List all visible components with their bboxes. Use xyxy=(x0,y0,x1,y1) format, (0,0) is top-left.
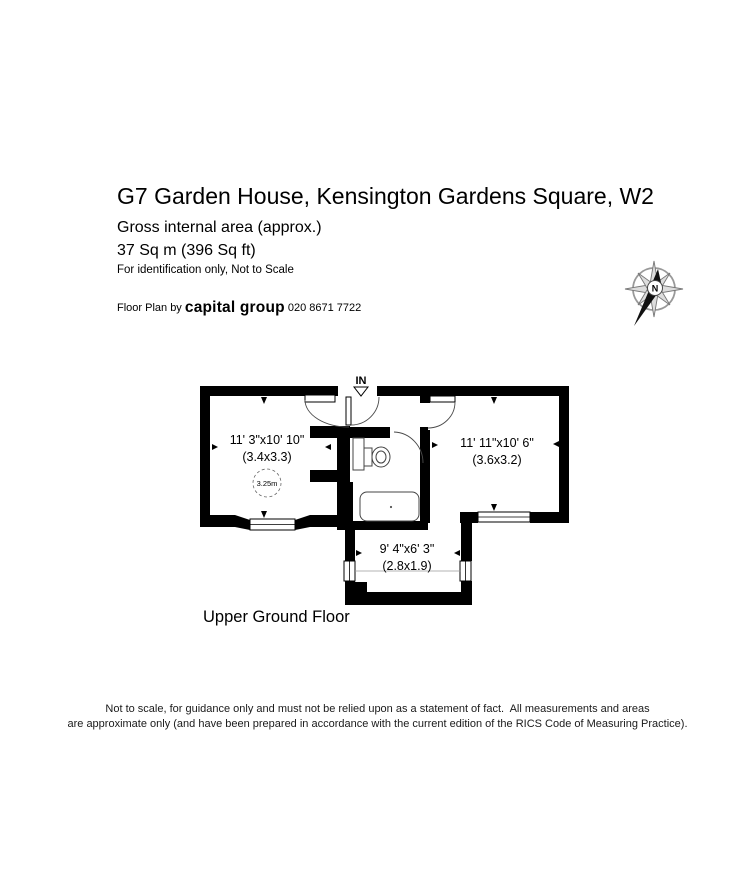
right-room-door-leaf xyxy=(430,396,455,402)
vanity xyxy=(353,438,364,470)
ceiling-height-label: 3.25m xyxy=(257,479,278,488)
bathroom-door-arc xyxy=(394,432,423,463)
compass-north-label: N xyxy=(652,284,659,294)
right-room-dims-m: (3.6x3.2) xyxy=(472,453,521,467)
right-room-door-arc xyxy=(428,402,455,428)
brand-logo: capital group xyxy=(185,299,285,316)
ceiling-height-indicator: 3.25m xyxy=(253,469,281,497)
bathtub xyxy=(360,492,419,521)
page-title: G7 Garden House, Kensington Gardens Squa… xyxy=(117,183,654,210)
bathtub-drain xyxy=(390,506,392,508)
floorplan-page: G7 Garden House, Kensington Gardens Squa… xyxy=(0,0,755,876)
entrance-label: IN xyxy=(356,375,367,387)
entrance-door-arc xyxy=(351,397,379,425)
left-room-dims-m: (3.4x3.3) xyxy=(242,450,291,464)
identification-note: For identification only, Not to Scale xyxy=(117,264,294,276)
entrance-arrowhead xyxy=(354,387,368,396)
toilet-cistern xyxy=(364,448,372,466)
left-room-door-leaf xyxy=(305,395,335,402)
disclaimer-line-2: are approximate only (and have been prep… xyxy=(0,717,755,732)
left-room-door-arc xyxy=(305,400,349,427)
entrance-door-leaf xyxy=(346,397,351,425)
credit-prefix: Floor Plan by xyxy=(117,302,185,314)
bottom-room-dims-ft: 9' 4"x6' 3" xyxy=(380,542,435,556)
left-room-dims-ft: 11' 3"x10' 10" xyxy=(230,433,305,447)
right-room-dims-ft: 11' 11"x10' 6" xyxy=(460,436,534,450)
bottom-room-dims-m: (2.8x1.9) xyxy=(382,559,431,573)
floor-plan: IN 3.25m 11' 3"x10' 10" (3.4x3.3) 11' xyxy=(190,355,590,635)
disclaimer: Not to scale, for guidance only and must… xyxy=(0,702,755,731)
entrance-arrow: IN xyxy=(354,375,368,396)
gross-area-note: Gross internal area (approx.) xyxy=(117,219,322,237)
bathroom-fixtures xyxy=(353,438,419,521)
floor-label: Upper Ground Floor xyxy=(203,608,350,626)
credit-line: Floor Plan by capital group 020 8671 772… xyxy=(117,299,361,317)
disclaimer-line-1: Not to scale, for guidance only and must… xyxy=(0,702,755,717)
gross-area-value: 37 Sq m (396 Sq ft) xyxy=(117,242,256,260)
credit-phone: 020 8671 7722 xyxy=(285,302,361,314)
compass-icon: N xyxy=(622,258,686,332)
